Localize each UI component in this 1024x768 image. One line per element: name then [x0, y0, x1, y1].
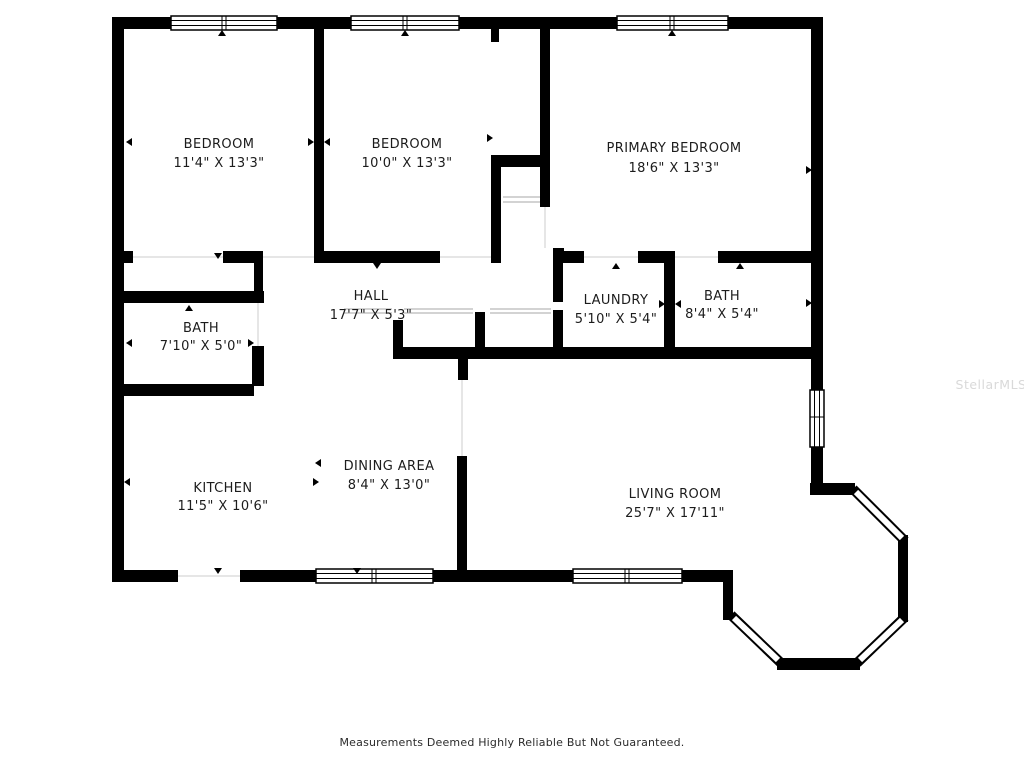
floor-plan-page: BEDROOM 11'4" X 13'3" BEDROOM 10'0" X 13…	[0, 0, 1024, 768]
room-dims-primary-bedroom: 18'6" X 13'3"	[628, 161, 719, 176]
room-label-laundry: LAUNDRY	[584, 293, 649, 308]
room-label-bedroom-2: BEDROOM	[372, 137, 443, 152]
window-dining	[316, 569, 433, 583]
measurements-disclaimer: Measurements Deemed Highly Reliable But …	[339, 736, 684, 749]
room-label-hall: HALL	[354, 289, 389, 304]
room-dims-bedroom-2: 10'0" X 13'3"	[361, 156, 452, 171]
room-label-primary-bedroom: PRIMARY BEDROOM	[607, 141, 742, 156]
room-dims-hall: 17'7" X 5'3"	[330, 308, 412, 323]
floor-plan-image: BEDROOM 11'4" X 13'3" BEDROOM 10'0" X 13…	[0, 0, 1024, 768]
room-dims-dining-area: 8'4" X 13'0"	[348, 478, 430, 493]
window-living-right	[810, 390, 824, 447]
window-bedroom1	[171, 16, 277, 30]
room-dims-laundry: 5'10" X 5'4"	[575, 312, 657, 327]
room-dims-bath-left: 7'10" X 5'0"	[160, 339, 242, 354]
window-living	[573, 569, 682, 583]
window-primary-bedroom	[617, 16, 728, 30]
room-label-kitchen: KITCHEN	[193, 481, 252, 496]
room-dims-bath-right: 8'4" X 5'4"	[685, 307, 759, 322]
room-label-bath-left: BATH	[183, 321, 219, 336]
room-dims-living-room: 25'7" X 17'11"	[625, 506, 725, 521]
stellar-mls-watermark: StellarMLS	[956, 377, 1024, 392]
room-label-bath-right: BATH	[704, 289, 740, 304]
room-label-bedroom-1: BEDROOM	[184, 137, 255, 152]
room-label-living-room: LIVING ROOM	[629, 487, 722, 502]
window-bedroom2	[351, 16, 459, 30]
room-dims-kitchen: 11'5" X 10'6"	[177, 499, 268, 514]
room-dims-bedroom-1: 11'4" X 13'3"	[173, 156, 264, 171]
room-label-dining-area: DINING AREA	[344, 459, 435, 474]
